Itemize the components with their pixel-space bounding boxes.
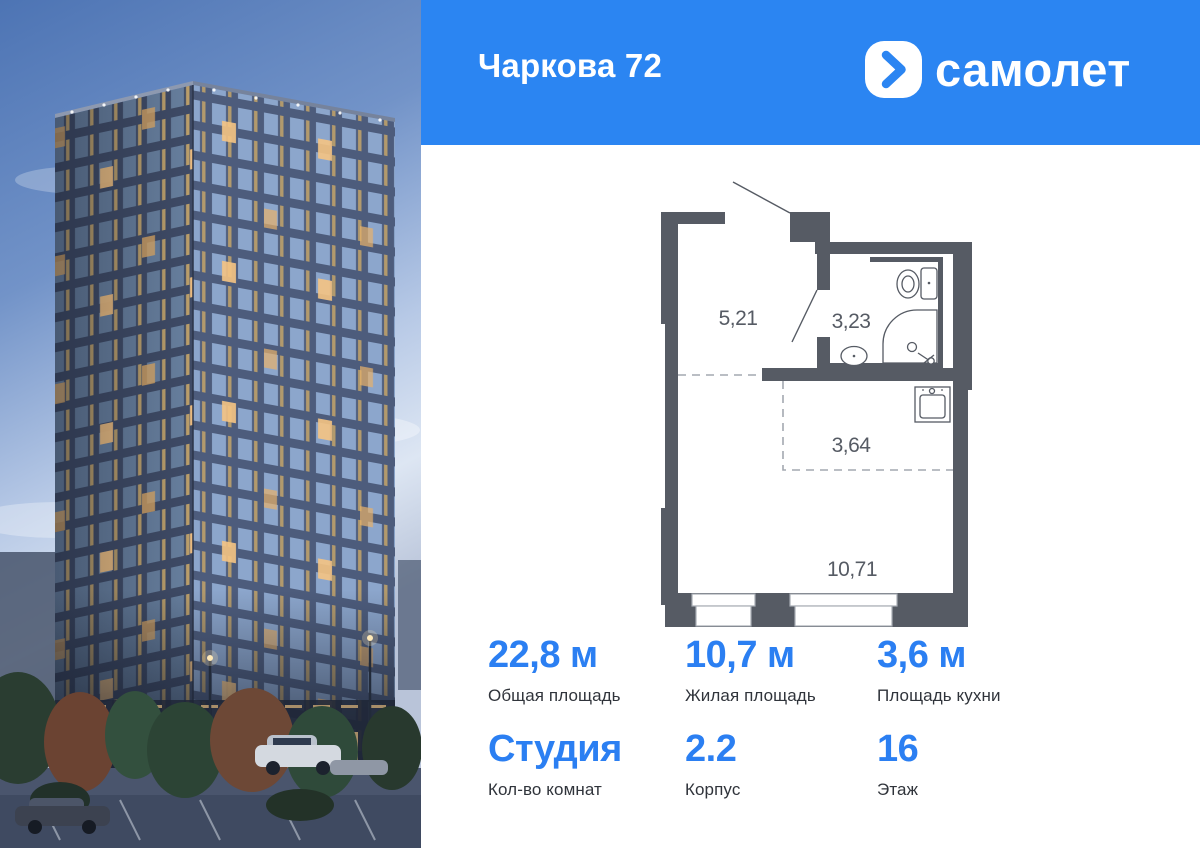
stat-label: Кол-во комнат [488,780,678,800]
stat-label: Этаж [877,780,1067,800]
building-photo [0,0,421,848]
floor-plan: 5,21 3,23 3,64 10,71 [650,163,980,648]
room-area-living: 10,71 [827,558,877,581]
zone-dashes [678,375,953,470]
stat-living-area: 10,7 м Жилая площадь [685,634,875,706]
car-parked [330,760,388,775]
stat-total-area: 22,8 м Общая площадь [488,634,678,706]
stat-label: Корпус [685,780,875,800]
stat-kitchen-area: 3,6 м Площадь кухни [877,634,1067,706]
chevron-right-icon [865,41,922,98]
stat-value: Студия [488,728,678,771]
room-area-hallway: 5,21 [719,307,758,330]
stat-label: Жилая площадь [685,686,875,706]
kitchen-sink-icon [915,387,950,422]
bath-sink-icon [841,347,867,366]
brand-name: самолет [935,46,1131,93]
room-area-kitchen: 3,64 [832,434,872,457]
room-area-bathroom: 3,23 [832,310,871,333]
listing-card: Чаркова 72 самолет [0,0,1200,848]
stat-value: 16 [877,728,1067,771]
stat-value: 22,8 м [488,634,678,677]
toilet-icon [897,268,937,299]
brand-logo-icon [865,41,922,98]
stat-building: 2.2 Корпус [685,728,875,800]
distant-building [398,560,421,690]
plan-windows [692,594,897,626]
tower [55,81,395,790]
stat-rooms: Студия Кол-во комнат [488,728,678,800]
project-title: Чаркова 72 [478,47,662,85]
stat-value: 10,7 м [685,634,875,677]
header-banner: Чаркова 72 самолет [421,0,1200,145]
shower-icon [883,310,937,364]
stat-label: Общая площадь [488,686,678,706]
building-illustration [0,0,421,848]
stat-value: 2.2 [685,728,875,771]
stat-value: 3,6 м [877,634,1067,677]
content-panel: Чаркова 72 самолет [421,0,1200,848]
stat-label: Площадь кухни [877,686,1067,706]
brand-logo: самолет [865,41,1131,98]
stat-floor: 16 Этаж [877,728,1067,800]
